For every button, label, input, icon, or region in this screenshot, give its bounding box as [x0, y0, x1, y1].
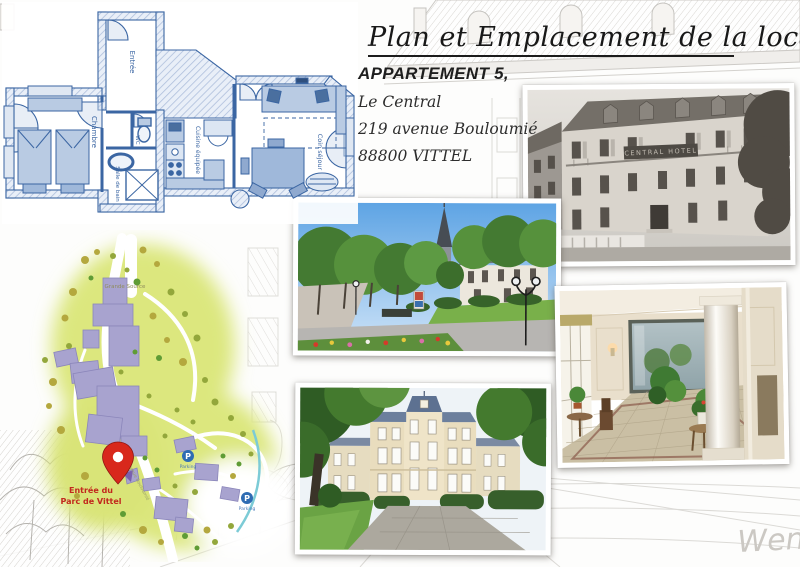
- brochure-page: Wen: [0, 0, 800, 567]
- artist-signature: Wen: [737, 522, 800, 560]
- parking-letter-2: P: [244, 494, 250, 503]
- address-city: 88800 VITTEL: [358, 147, 538, 165]
- photo-chateau: [295, 383, 552, 556]
- parking-label-1: Parking: [180, 464, 197, 470]
- parking-letter-1: P: [185, 452, 191, 461]
- map-label-grande-source: Grande Source: [105, 284, 147, 290]
- photo-historic-hotel: CENTRAL HOTEL: [522, 83, 795, 267]
- title-underline: [368, 55, 734, 57]
- label-chambre: Chambre: [90, 116, 98, 148]
- french-window: [560, 316, 592, 449]
- address-street: 219 avenue Bouloumié: [358, 120, 538, 138]
- park-map: Grande Source avenue Bouloumié P Parking…: [25, 230, 295, 562]
- photo-interior-hall: [554, 282, 789, 468]
- label-salle-de-bain: Salle de bain: [114, 166, 120, 202]
- label-entree: Entrée: [128, 51, 136, 74]
- label-cuisine: Cuisine équipée: [194, 126, 201, 174]
- label-coin-sejour: Coin séjour: [316, 134, 324, 171]
- column: [704, 300, 741, 461]
- entrance-label-line2: Parc de Vittel: [60, 497, 121, 506]
- rental-address: APPARTEMENT 5, Le Central 219 avenue Bou…: [358, 64, 538, 165]
- bench: [382, 309, 412, 317]
- entrance-label-line1: Entrée du: [69, 485, 113, 495]
- page-title: Plan et Emplacement de la location: [368, 22, 734, 53]
- address-apartment: APPARTEMENT 5,: [358, 64, 538, 84]
- page-header: Plan et Emplacement de la location: [368, 22, 734, 57]
- apartment-floor-plan: Entrée Chambre Salle de bain WC Cuisine …: [0, 0, 362, 230]
- label-wc: WC: [134, 135, 140, 144]
- parking-label-2: Parking: [239, 506, 256, 512]
- valance: [560, 314, 592, 326]
- address-residence: Le Central: [358, 93, 538, 111]
